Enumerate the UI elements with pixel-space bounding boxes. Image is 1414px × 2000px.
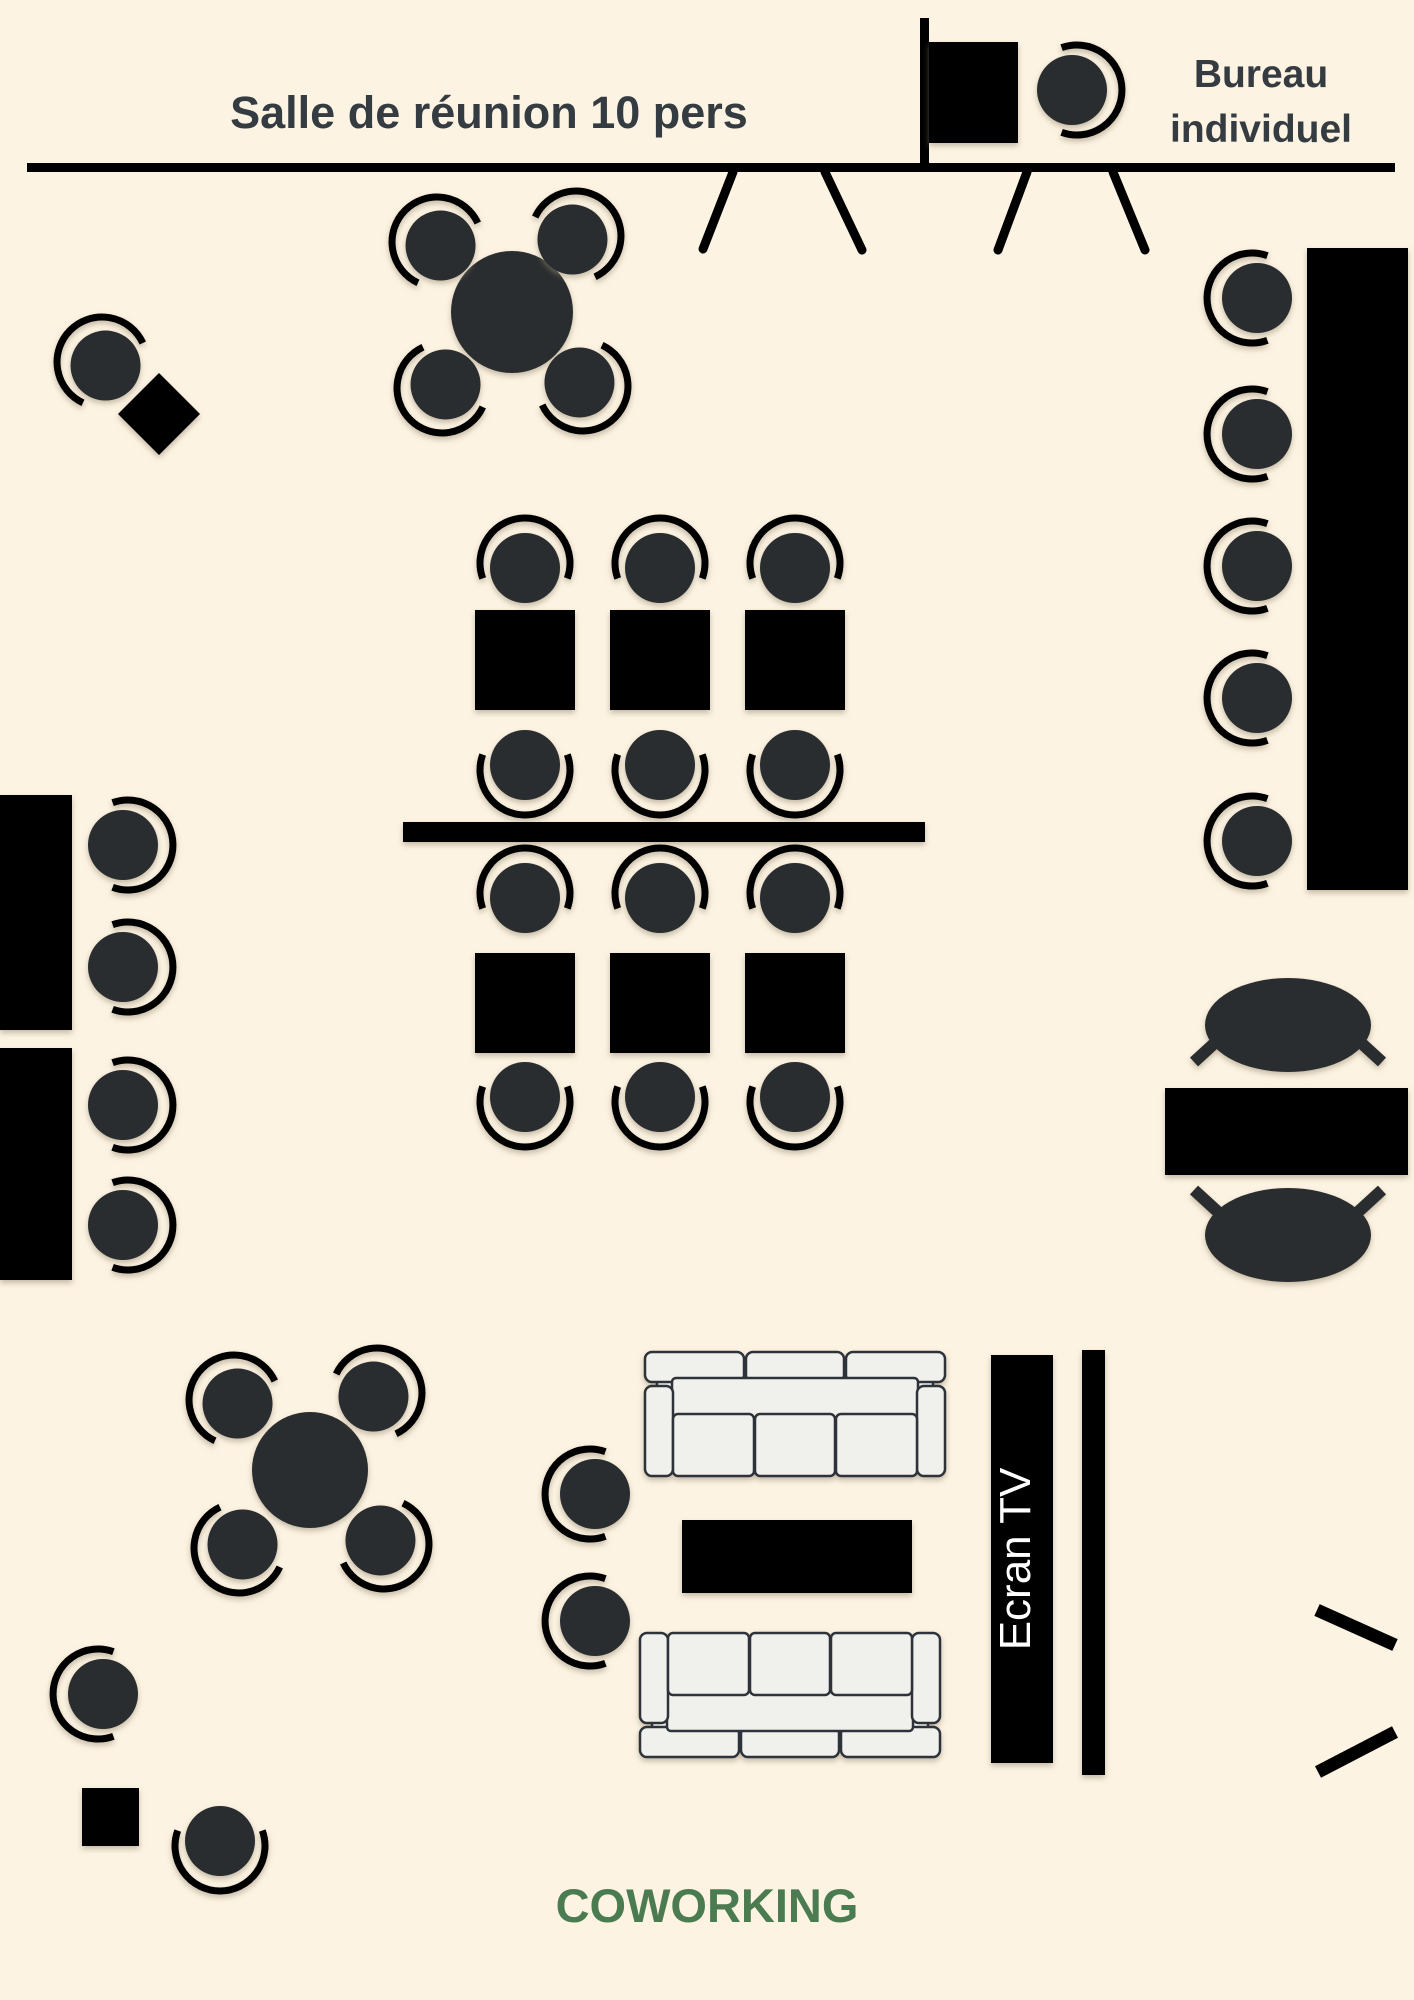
chair [175,1806,265,1891]
chair [53,1649,138,1739]
desk [475,953,575,1053]
bureau-label-line1: Bureau [1194,53,1328,96]
divider-table [403,822,925,842]
desk [610,610,710,710]
tv-wall-bar [1082,1350,1105,1775]
chair [750,1062,840,1147]
chair [1207,796,1292,886]
desk [610,953,710,1053]
oval-bench [1194,1188,1382,1282]
chair [545,1449,630,1539]
chair [480,1062,570,1147]
individual-desk [929,42,1018,143]
chair [480,848,570,933]
table-rect-right [1165,1088,1408,1175]
chair [1207,521,1292,611]
chair [480,730,570,815]
chair [545,1576,630,1666]
chair [88,1060,173,1150]
chair [88,1180,173,1270]
bureau-label-line2: individuel [1170,108,1352,151]
round-table-bottom [252,1412,368,1528]
door-opening-marks [1317,1610,1395,1772]
chair [615,1062,705,1147]
floor-plan: Salle de réunion 10 pers Bureau individu… [0,0,1414,2000]
top-wall [27,163,1395,172]
chair [750,518,840,603]
sofa [645,1352,945,1476]
chair [615,848,705,933]
tv-label: Ecran TV [991,1467,1040,1650]
door-swing-marks [703,172,1145,250]
meeting-room-title: Salle de réunion 10 pers [230,87,748,138]
long-table-right [1307,248,1408,890]
wall-table-left [0,1048,72,1280]
chair [88,800,173,890]
coworking-label: COWORKING [556,1879,859,1932]
oval-bench [1194,978,1382,1072]
chair [480,518,570,603]
chair [1037,45,1122,135]
coffee-table [682,1520,912,1593]
chair [750,730,840,815]
partition-wall [920,18,929,167]
wall-table-left [0,795,72,1030]
chair [1207,653,1292,743]
chair [1207,253,1292,343]
sofa [640,1633,940,1757]
desk [745,610,845,710]
desk [745,953,845,1053]
chair [750,848,840,933]
side-table-square [82,1788,139,1846]
desk [475,610,575,710]
chair [1207,389,1292,479]
chair [615,730,705,815]
chair [615,518,705,603]
chair [88,922,173,1012]
